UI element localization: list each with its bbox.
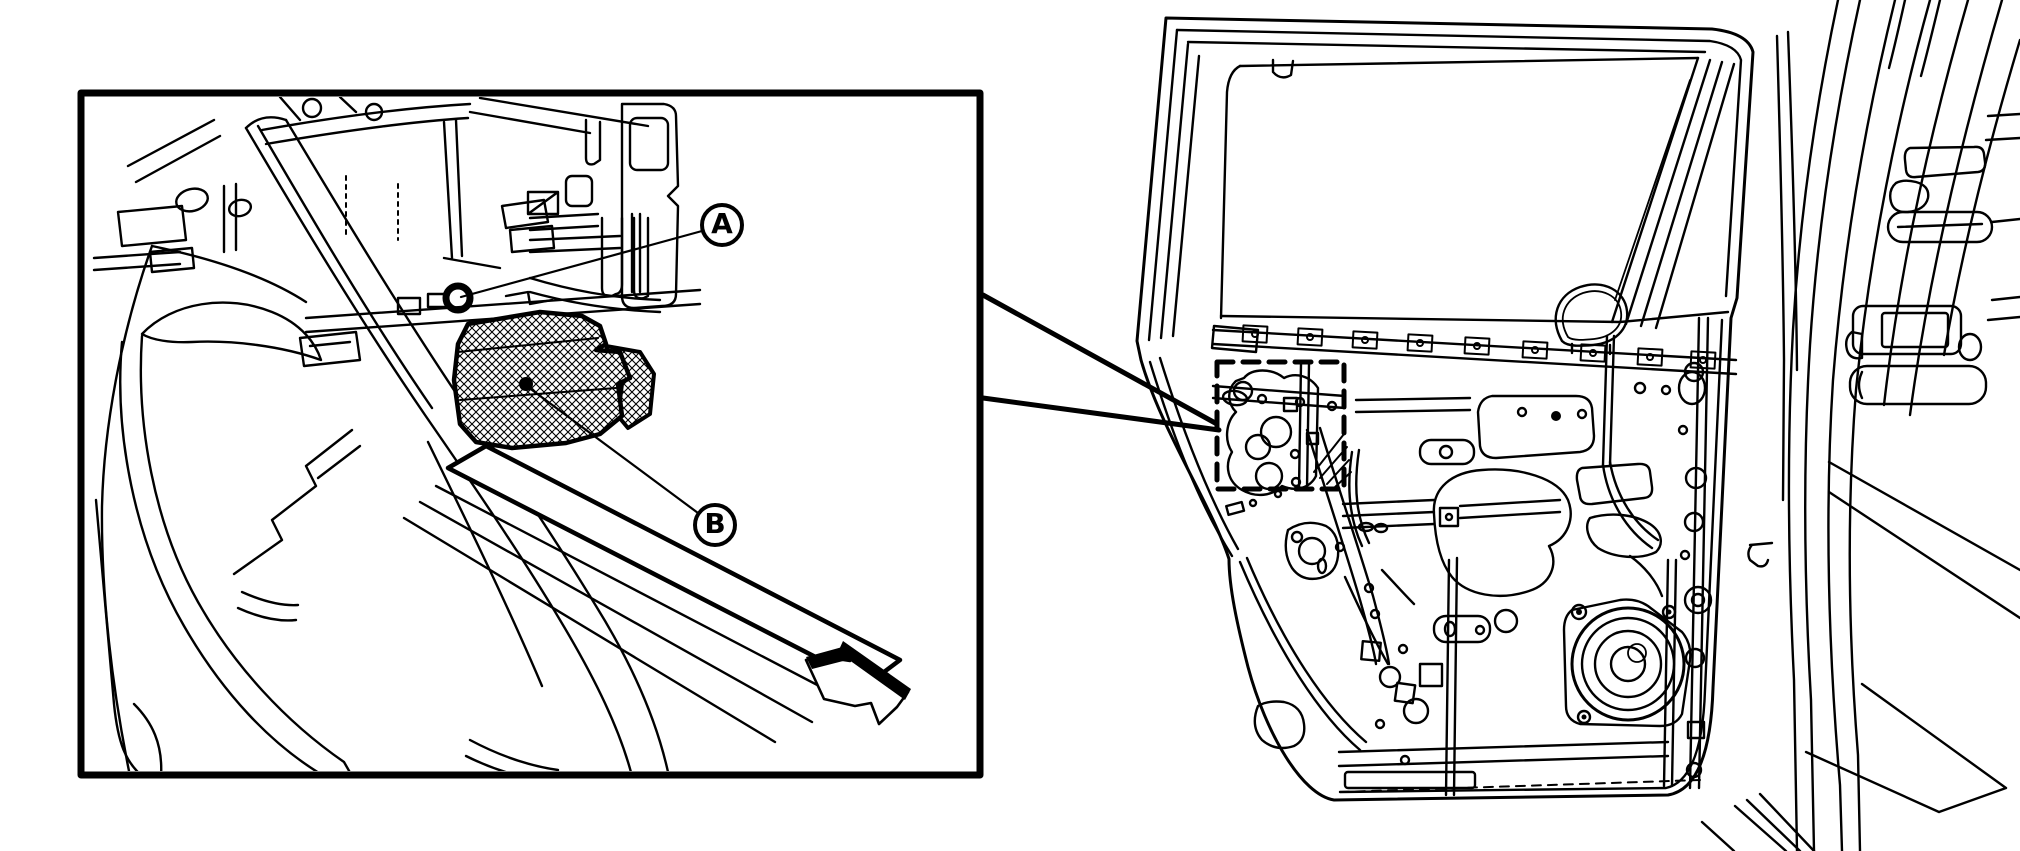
diagram-canvas: A B [0,0,2020,851]
sill-diagonals [1702,462,2020,851]
label-a-text: A [711,207,733,240]
door-outline [1137,18,1753,800]
label-a: A [700,203,744,247]
line-art [0,0,2020,851]
label-b: B [693,503,737,547]
callout-region [1217,362,1351,515]
rear-pillar-partition [1612,58,1734,328]
armrest-bar [1850,366,1986,404]
callout-connector [983,295,1219,430]
door-speaker [1564,600,1690,726]
detail-inset-figure [81,93,980,781]
rear-door-figure [1137,18,1753,800]
inner-panel-center [1286,428,1662,664]
belt-rail-clips [1212,325,1736,374]
label-b-text: B [704,507,725,540]
body-pillar-figure [1702,0,2020,851]
